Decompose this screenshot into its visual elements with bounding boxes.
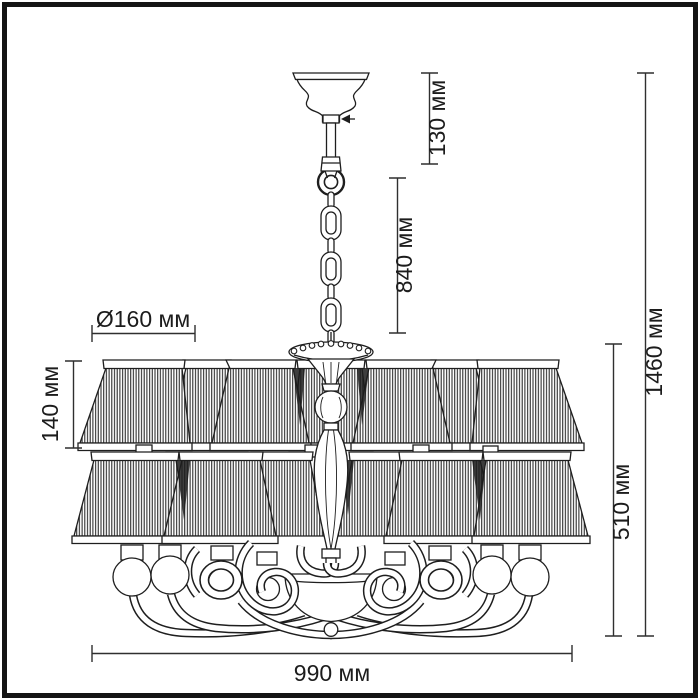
lampshade [472, 452, 590, 544]
lampshade [470, 360, 584, 451]
dim-label-overall-width: 990 мм [294, 660, 370, 686]
light-bulb [151, 556, 189, 594]
lampshade [78, 360, 192, 451]
dim-label-fixture-height: 510 мм [608, 464, 634, 540]
dim-shade-height [65, 361, 82, 448]
dim-label-overall-height: 1460 мм [641, 307, 667, 396]
light-bulb [113, 558, 151, 596]
canopy-stem [327, 123, 336, 158]
chain [321, 192, 341, 347]
chandelier-diagram: 130 мм 840 мм 1460 мм 510 мм 140 мм Ø160… [0, 0, 700, 700]
chandelier [72, 73, 590, 636]
diagram-page: 130 мм 840 мм 1460 мм 510 мм 140 мм Ø160… [0, 0, 700, 700]
set-screw [341, 115, 355, 124]
center-ball [315, 391, 347, 423]
dim-label-canopy-height: 130 мм [424, 80, 450, 156]
dim-label-chain-drop: 840 мм [391, 217, 417, 293]
finial-ball [324, 623, 338, 637]
dim-label-shade-height: 140 мм [37, 366, 63, 442]
ceiling-canopy [293, 73, 369, 195]
dim-label-shade-diameter: Ø160 мм [96, 306, 190, 332]
